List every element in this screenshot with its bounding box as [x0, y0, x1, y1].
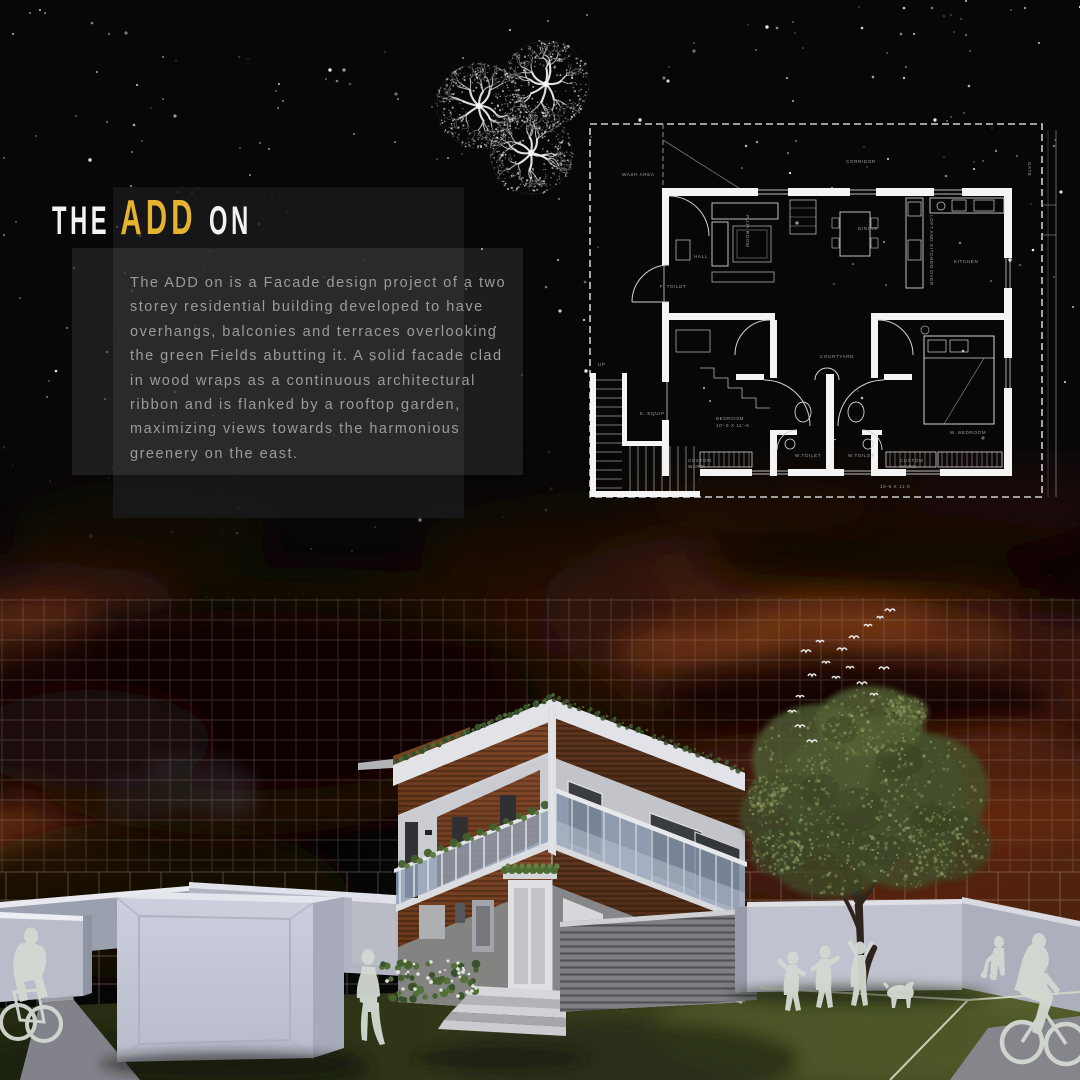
svg-text:CUSTOM: CUSTOM — [900, 458, 923, 463]
svg-text:10-9 X 11-0: 10-9 X 11-0 — [880, 484, 910, 489]
svg-text:COURTYARD: COURTYARD — [820, 354, 854, 359]
svg-text:DINING: DINING — [858, 226, 878, 231]
svg-text:W.TOILET: W.TOILET — [795, 453, 821, 458]
svg-text:KITCHEN: KITCHEN — [954, 259, 978, 264]
svg-text:BEDROOM: BEDROOM — [716, 416, 744, 421]
svg-text:UP: UP — [598, 362, 606, 367]
svg-text:GATE: GATE — [1027, 162, 1032, 177]
svg-text:WARD.: WARD. — [900, 464, 918, 469]
svg-text:M. BEDROOM: M. BEDROOM — [950, 430, 986, 435]
svg-text:E. EQUIP: E. EQUIP — [640, 411, 665, 416]
svg-text:HALL: HALL — [694, 254, 708, 259]
svg-text:10'-0 X 11'-6: 10'-0 X 11'-6 — [716, 423, 749, 428]
svg-text:W.TOILET: W.TOILET — [848, 453, 874, 458]
svg-text:WARD.: WARD. — [688, 464, 706, 469]
svg-text:WASH AREA: WASH AREA — [622, 172, 655, 177]
svg-text:CORRIDOR: CORRIDOR — [846, 159, 876, 164]
svg-text:LOFT AND KITCHEN OVER: LOFT AND KITCHEN OVER — [929, 215, 934, 286]
svg-text:CUSTOM: CUSTOM — [688, 458, 711, 463]
svg-text:F. TOILET: F. TOILET — [660, 284, 686, 289]
svg-text:PUJA ROOM: PUJA ROOM — [745, 215, 750, 247]
